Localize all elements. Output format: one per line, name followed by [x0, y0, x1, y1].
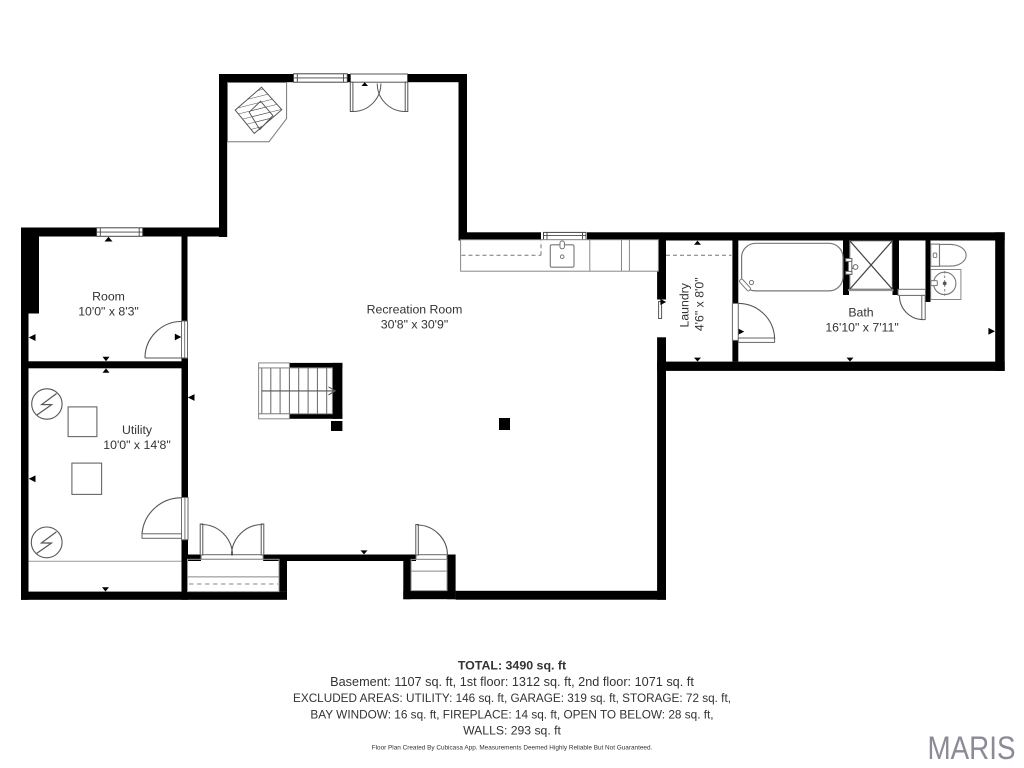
svg-text:10'0" x 14'8": 10'0" x 14'8"	[103, 438, 170, 452]
svg-text:30'8" x 30'9": 30'8" x 30'9"	[381, 318, 448, 332]
svg-text:Room: Room	[92, 290, 125, 304]
svg-text:16'10" x 7'11": 16'10" x 7'11"	[825, 321, 898, 335]
svg-text:Floor Plan Created By Cubicasa: Floor Plan Created By Cubicasa App. Meas…	[372, 745, 653, 752]
svg-text:Laundry: Laundry	[678, 282, 692, 327]
svg-text:4'6" x 8'0": 4'6" x 8'0"	[693, 277, 707, 331]
svg-text:EXCLUDED AREAS: UTILITY: 146 s: EXCLUDED AREAS: UTILITY: 146 sq. ft, GAR…	[293, 692, 731, 705]
svg-text:TOTAL: 3490 sq. ft: TOTAL: 3490 sq. ft	[458, 659, 566, 673]
svg-text:10'0" x 8'3": 10'0" x 8'3"	[78, 305, 139, 319]
svg-text:Recreation Room: Recreation Room	[367, 303, 463, 317]
svg-text:Bath: Bath	[848, 306, 873, 320]
svg-text:WALLS: 293 sq. ft: WALLS: 293 sq. ft	[463, 724, 561, 738]
svg-text:Utility: Utility	[122, 423, 153, 437]
svg-text:MARIS: MARIS	[928, 729, 1016, 766]
svg-text:Basement: 1107 sq. ft, 1st flo: Basement: 1107 sq. ft, 1st floor: 1312 s…	[330, 675, 694, 689]
svg-text:BAY WINDOW: 16 sq. ft, FIREPLA: BAY WINDOW: 16 sq. ft, FIREPLACE: 14 sq.…	[310, 707, 713, 721]
